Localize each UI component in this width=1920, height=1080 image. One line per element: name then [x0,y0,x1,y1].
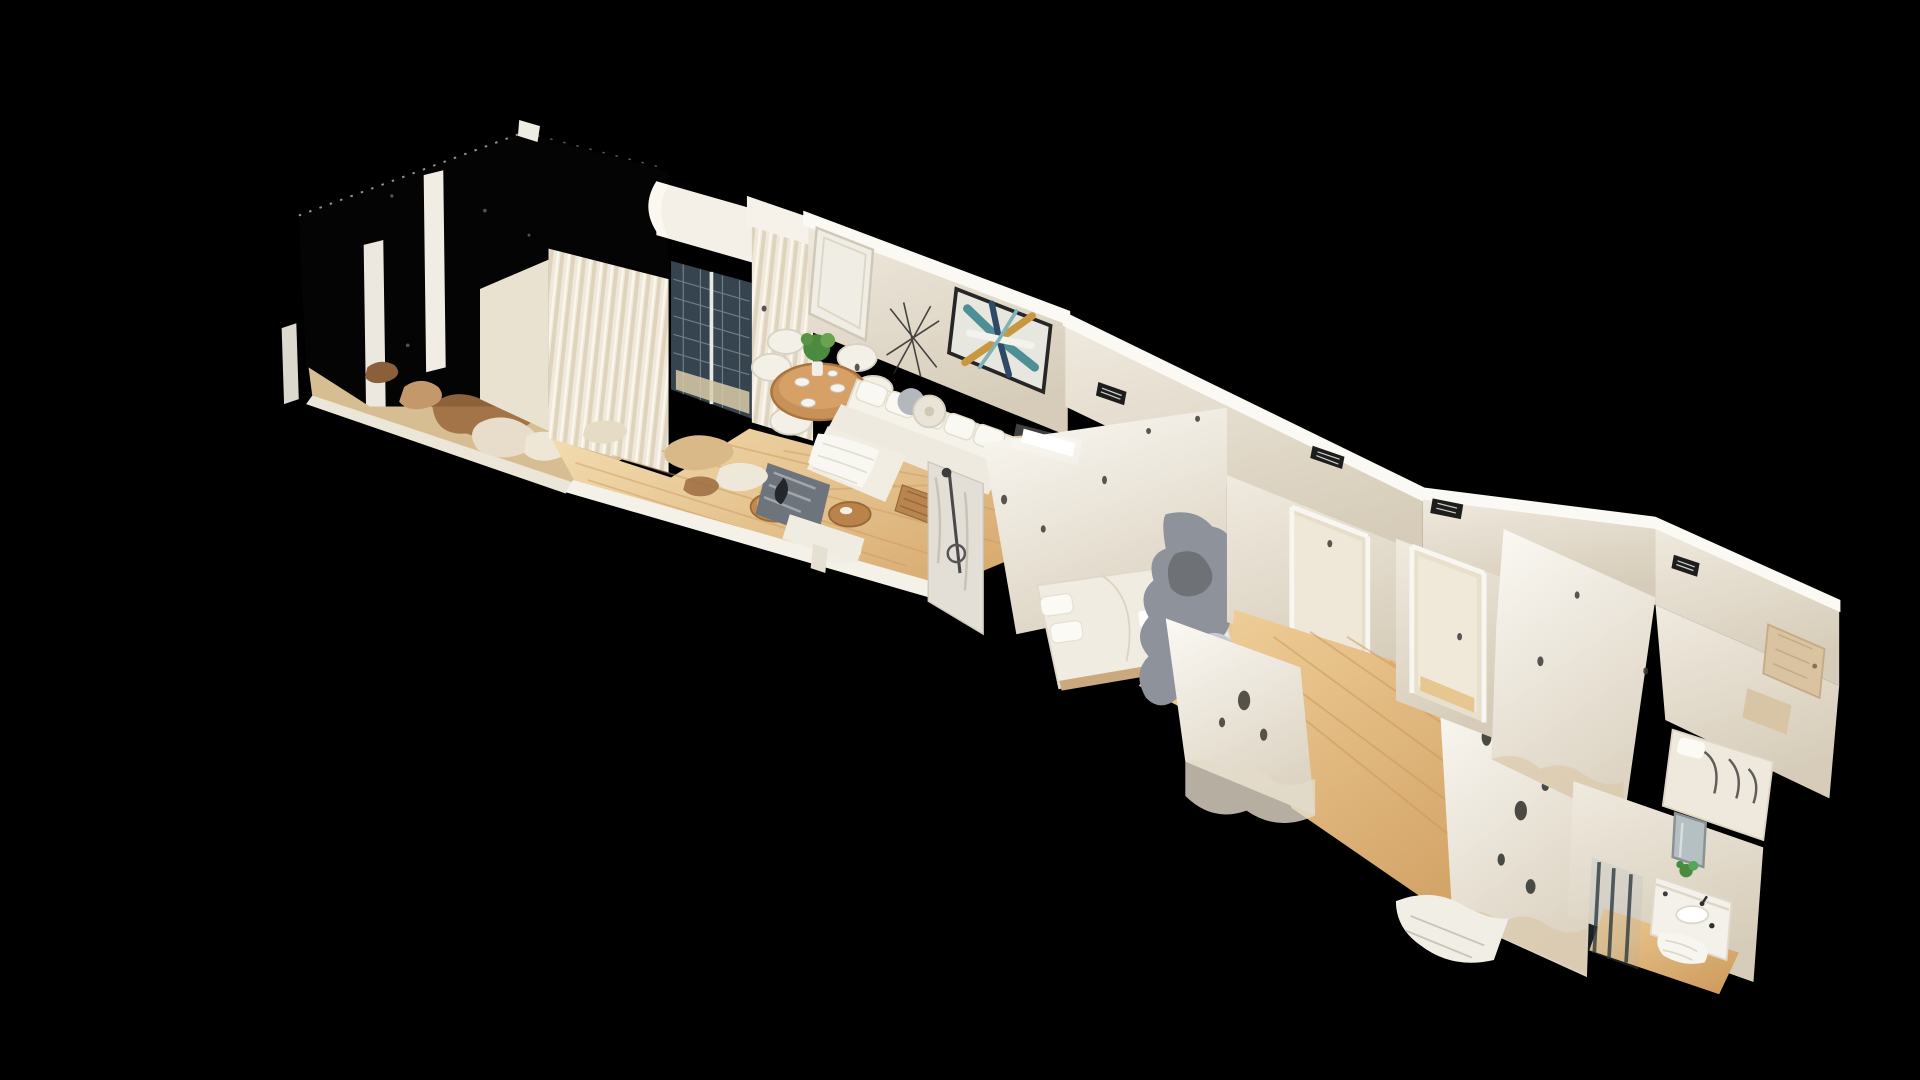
left-wall-edge [282,323,299,404]
door-frame-2 [1412,546,1484,722]
tv-bench-leg [811,544,828,573]
bathroom-mirror [1673,813,1706,867]
tour-viewport[interactable] [0,0,1920,1080]
shower-glass [1587,857,1643,970]
shower-head [942,468,952,478]
soap-item [1663,891,1668,896]
wall-column-1 [364,240,386,414]
coffee-table-small [829,502,871,526]
sink [1676,906,1708,923]
wall-column-2 [424,170,446,372]
drawer-knob [1709,923,1714,928]
bolster-center [924,407,934,417]
dollhouse-3d-model [0,0,1920,1080]
table-decor [840,507,852,514]
pillow-2 [1049,620,1083,644]
pillow-1 [1040,593,1074,617]
